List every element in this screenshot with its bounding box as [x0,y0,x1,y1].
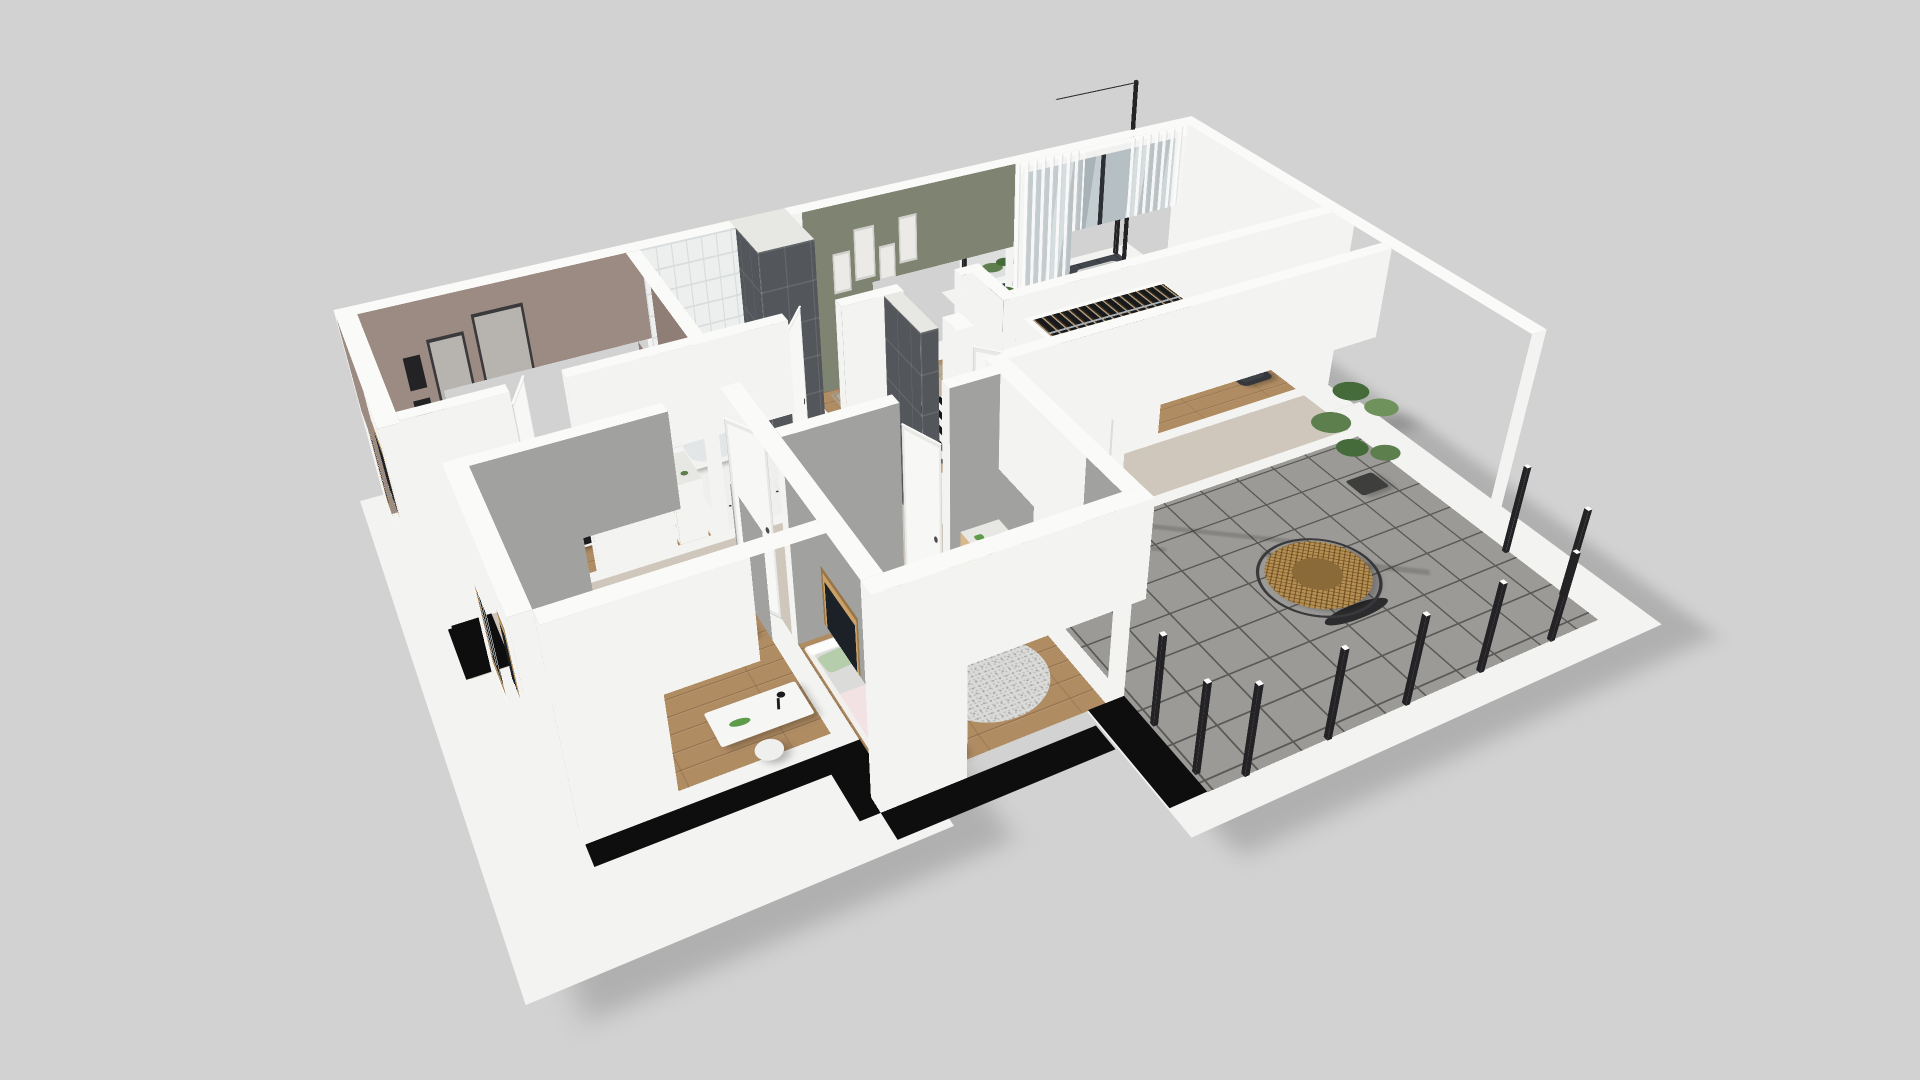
balcony-rail-top [960,188,1121,228]
wall-balcony-door-top [1007,119,1188,164]
plant-leaves [993,256,1018,267]
laundry-rail-bar [1055,82,1137,100]
plant-leaves [1303,408,1359,437]
wall-shelf [403,355,428,392]
balustrade-post [1039,271,1044,273]
door-handle [934,536,938,544]
terrace-plant-pot [1345,472,1390,496]
door-handle [804,397,806,405]
balustrade-post-south-face [1505,467,1531,553]
wall-north-living-top [795,158,1016,213]
picture-frame [832,250,851,294]
balustrade-post-south-face-surface [1115,191,1122,255]
balustrade-post-west-face-surface [1113,190,1119,254]
wall-north-bathroom-top [634,221,735,250]
picture-frame [853,225,876,282]
plant-leaves [1325,378,1376,404]
picture-frame [879,243,896,282]
balustrade-post-top [1041,208,1046,210]
balustrade-post-south-face [1041,209,1047,274]
pelmet [1015,124,1188,175]
wall-north-gap-top [784,206,802,215]
balustrade-post-top [1117,189,1122,191]
balustrade-post-south-face-surface [1041,209,1047,274]
picture-frame [898,213,917,264]
egg-chair-cushion [1282,552,1354,596]
plant-leaves [1357,395,1405,419]
balustrade-post-west-face [1039,208,1043,273]
balustrade-post [1113,252,1118,254]
laundry-rail-pole-top [1134,80,1138,82]
balustrade-post-south-face-surface [1505,467,1531,553]
balustrade-post-south-face [1115,191,1122,255]
plant-leaves [1364,442,1406,464]
dark-tile-column-top [729,208,814,252]
balustrade-post-west-face-surface [1039,208,1043,273]
camera-tilt [0,0,1920,1080]
plant-leaves [1330,436,1376,460]
balustrade-post-west-face [1113,190,1119,254]
balustrade-post-top [962,227,967,229]
floor-plan-viewport [0,0,1920,1080]
